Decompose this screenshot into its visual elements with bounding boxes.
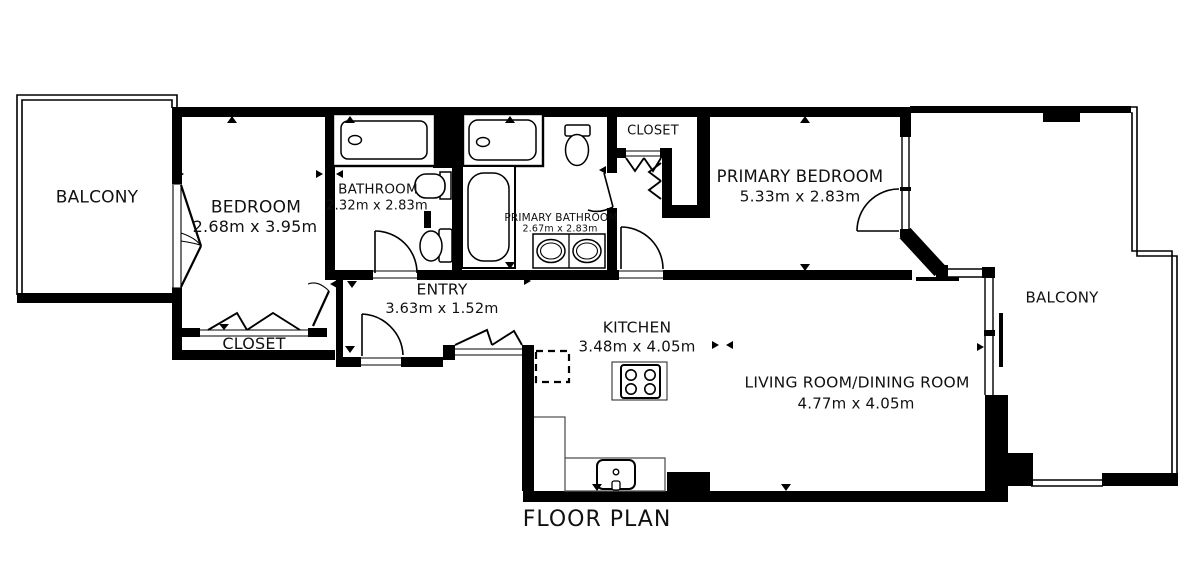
balcony-right-label: BALCONY <box>1026 291 1099 306</box>
toilet-bathroom <box>420 229 452 262</box>
primary-bathroom-dimensions: 2.67m x 2.83m <box>522 224 597 234</box>
kitchen-label: KITCHEN <box>603 320 672 336</box>
bathroom-label: BATHROOM <box>338 183 418 197</box>
floor-plan-title: FLOOR PLAN <box>523 509 672 531</box>
walls <box>17 106 1178 502</box>
floor-plan-canvas: BALCONY BEDROOM 2.68m x 3.95m CLOSET BAT… <box>0 0 1200 588</box>
primary-bathroom-label: PRIMARY BATHROOM <box>504 213 617 224</box>
kitchen-dimensions: 3.48m x 4.05m <box>578 340 695 355</box>
closet-hall-label: CLOSET <box>627 125 679 138</box>
primary-bedroom-label: PRIMARY BEDROOM <box>717 169 884 186</box>
bathroom-dimensions: 2.32m x 2.83m <box>326 200 428 213</box>
living-dining-dimensions: 4.77m x 4.05m <box>797 397 914 412</box>
closet-left-label: CLOSET <box>222 336 285 352</box>
toilet-primary-bathroom <box>565 125 590 166</box>
double-vanity-sink <box>533 234 605 268</box>
shower-stall <box>463 114 543 166</box>
bedroom-dimensions: 2.68m x 3.95m <box>193 219 318 235</box>
stove-cooktop <box>612 362 667 400</box>
bathroom-sink <box>415 172 451 199</box>
primary-bedroom-dimensions: 5.33m x 2.83m <box>740 189 861 205</box>
living-dining-label: LIVING ROOM/DINING ROOM <box>744 375 969 391</box>
refrigerator-outline <box>536 351 569 382</box>
entry-label: ENTRY <box>416 282 467 298</box>
kitchen-sink <box>597 460 635 490</box>
bedroom-label: BEDROOM <box>211 200 301 217</box>
entry-dimensions: 3.63m x 1.52m <box>385 302 498 317</box>
balcony-left-label: BALCONY <box>56 190 139 207</box>
floor-plan-drawing <box>0 0 1200 588</box>
